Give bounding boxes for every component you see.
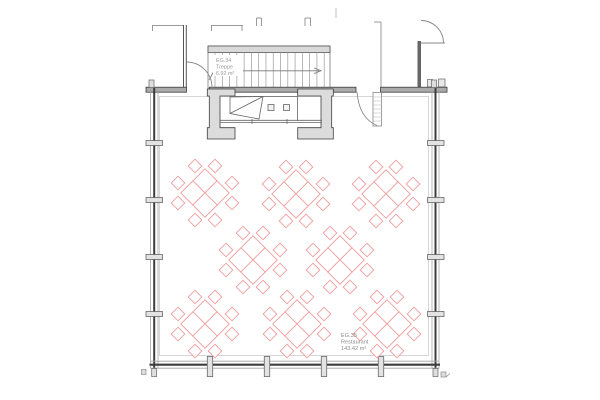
stair-top-stringer — [208, 46, 330, 53]
chair — [323, 280, 337, 294]
chair — [389, 160, 403, 174]
fixture-box — [439, 79, 446, 87]
mullion-marker — [428, 198, 445, 203]
mullion-marker — [378, 357, 384, 377]
chair — [208, 213, 222, 227]
chair — [352, 177, 366, 191]
restaurant-room-area: 143.42 m² — [341, 346, 366, 352]
chair — [317, 327, 331, 341]
wall-segment — [418, 41, 422, 88]
dining-table-cluster[interactable] — [219, 226, 287, 294]
dining-table-cluster[interactable] — [171, 159, 239, 227]
mullion-marker — [207, 357, 213, 377]
desk-equipment — [268, 105, 274, 111]
counter-front-edge — [220, 119, 322, 124]
chair — [279, 214, 293, 228]
mullion-marker — [146, 312, 163, 317]
chair — [236, 280, 250, 294]
chair — [360, 243, 374, 257]
staircase[interactable]: EG.34 Treppe 6.92 m² — [208, 46, 330, 88]
chair — [171, 176, 185, 190]
mullion-marker — [428, 141, 445, 146]
chair — [299, 160, 313, 174]
chair — [389, 214, 403, 228]
reception-desk — [230, 97, 263, 120]
chair — [263, 307, 277, 321]
door-top-right[interactable] — [421, 21, 445, 44]
dining-table-cluster[interactable] — [171, 290, 239, 358]
wall-top — [146, 87, 447, 92]
mullion-marker — [428, 255, 445, 260]
dining-table-cluster[interactable] — [352, 160, 420, 228]
chair — [262, 197, 276, 211]
mullion-marker — [146, 198, 163, 203]
mullion-marker — [428, 312, 445, 317]
chair — [369, 214, 383, 228]
stair-room-name: Treppe — [216, 65, 233, 71]
chair — [263, 327, 277, 341]
chair — [316, 177, 330, 191]
chair — [306, 243, 320, 257]
chair — [407, 327, 421, 341]
chair — [188, 290, 202, 304]
wall-left — [151, 88, 159, 369]
chair — [343, 226, 357, 240]
chair — [188, 159, 202, 173]
mullion-marker — [264, 357, 270, 377]
corridor-wall-left-jamb — [184, 25, 187, 88]
chair — [370, 290, 384, 304]
chair — [406, 177, 420, 191]
dining-table-cluster[interactable] — [262, 160, 330, 228]
mullion-marker — [146, 141, 163, 146]
chair — [343, 280, 357, 294]
restaurant-room-id: EG.35 — [341, 333, 357, 339]
chair — [188, 213, 202, 227]
chair — [369, 160, 383, 174]
mullion-marker — [321, 357, 327, 377]
chair — [273, 263, 287, 277]
stair-room-id: EG.34 — [216, 58, 231, 64]
chair — [225, 196, 239, 210]
reception-counter[interactable] — [220, 97, 322, 125]
chair — [280, 290, 294, 304]
stair-room-area: 6.92 m² — [216, 71, 234, 77]
door-swing-arc — [421, 21, 445, 44]
chair — [352, 197, 366, 211]
chair — [406, 197, 420, 211]
chair — [390, 290, 404, 304]
floorplan-drawing[interactable]: EG.34 Treppe 6.92 m² — [0, 0, 600, 400]
chair — [219, 243, 233, 257]
chair — [360, 263, 374, 277]
wall-bottom — [150, 361, 441, 368]
chair — [316, 197, 330, 211]
chair — [353, 307, 367, 321]
chair — [279, 160, 293, 174]
chair — [317, 307, 331, 321]
desk-equipment — [284, 105, 290, 111]
chair — [208, 159, 222, 173]
wall-right — [432, 88, 439, 369]
chair — [256, 226, 270, 240]
chair — [407, 307, 421, 321]
chair — [256, 280, 270, 294]
chair — [273, 243, 287, 257]
door-right[interactable] — [357, 92, 382, 126]
dining-table-cluster[interactable] — [306, 226, 374, 294]
chair — [300, 290, 314, 304]
dining-table-cluster[interactable] — [263, 290, 331, 358]
chair — [323, 226, 337, 240]
chair — [171, 196, 185, 210]
chair — [225, 176, 239, 190]
chair — [171, 307, 185, 321]
survey-markers — [142, 370, 451, 378]
chair — [171, 327, 185, 341]
tables-layer — [171, 159, 421, 358]
chair — [306, 263, 320, 277]
chair — [262, 177, 276, 191]
mullion-marker — [146, 255, 163, 260]
chair — [225, 327, 239, 341]
restaurant-room-name: Restaurant — [341, 340, 369, 346]
chair — [219, 263, 233, 277]
chair — [208, 290, 222, 304]
floorplan-canvas[interactable]: EG.34 Treppe 6.92 m² — [0, 0, 600, 400]
chair — [225, 307, 239, 321]
chair — [236, 226, 250, 240]
chair — [299, 214, 313, 228]
